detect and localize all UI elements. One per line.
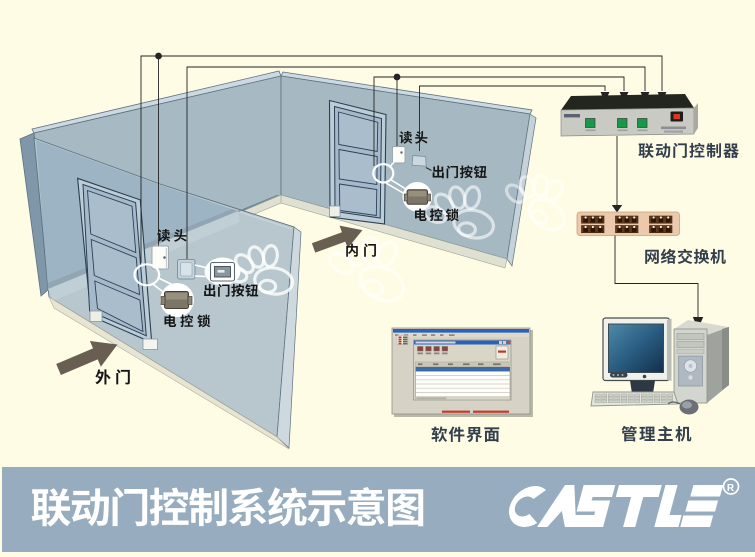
- svg-text:R: R: [727, 483, 735, 494]
